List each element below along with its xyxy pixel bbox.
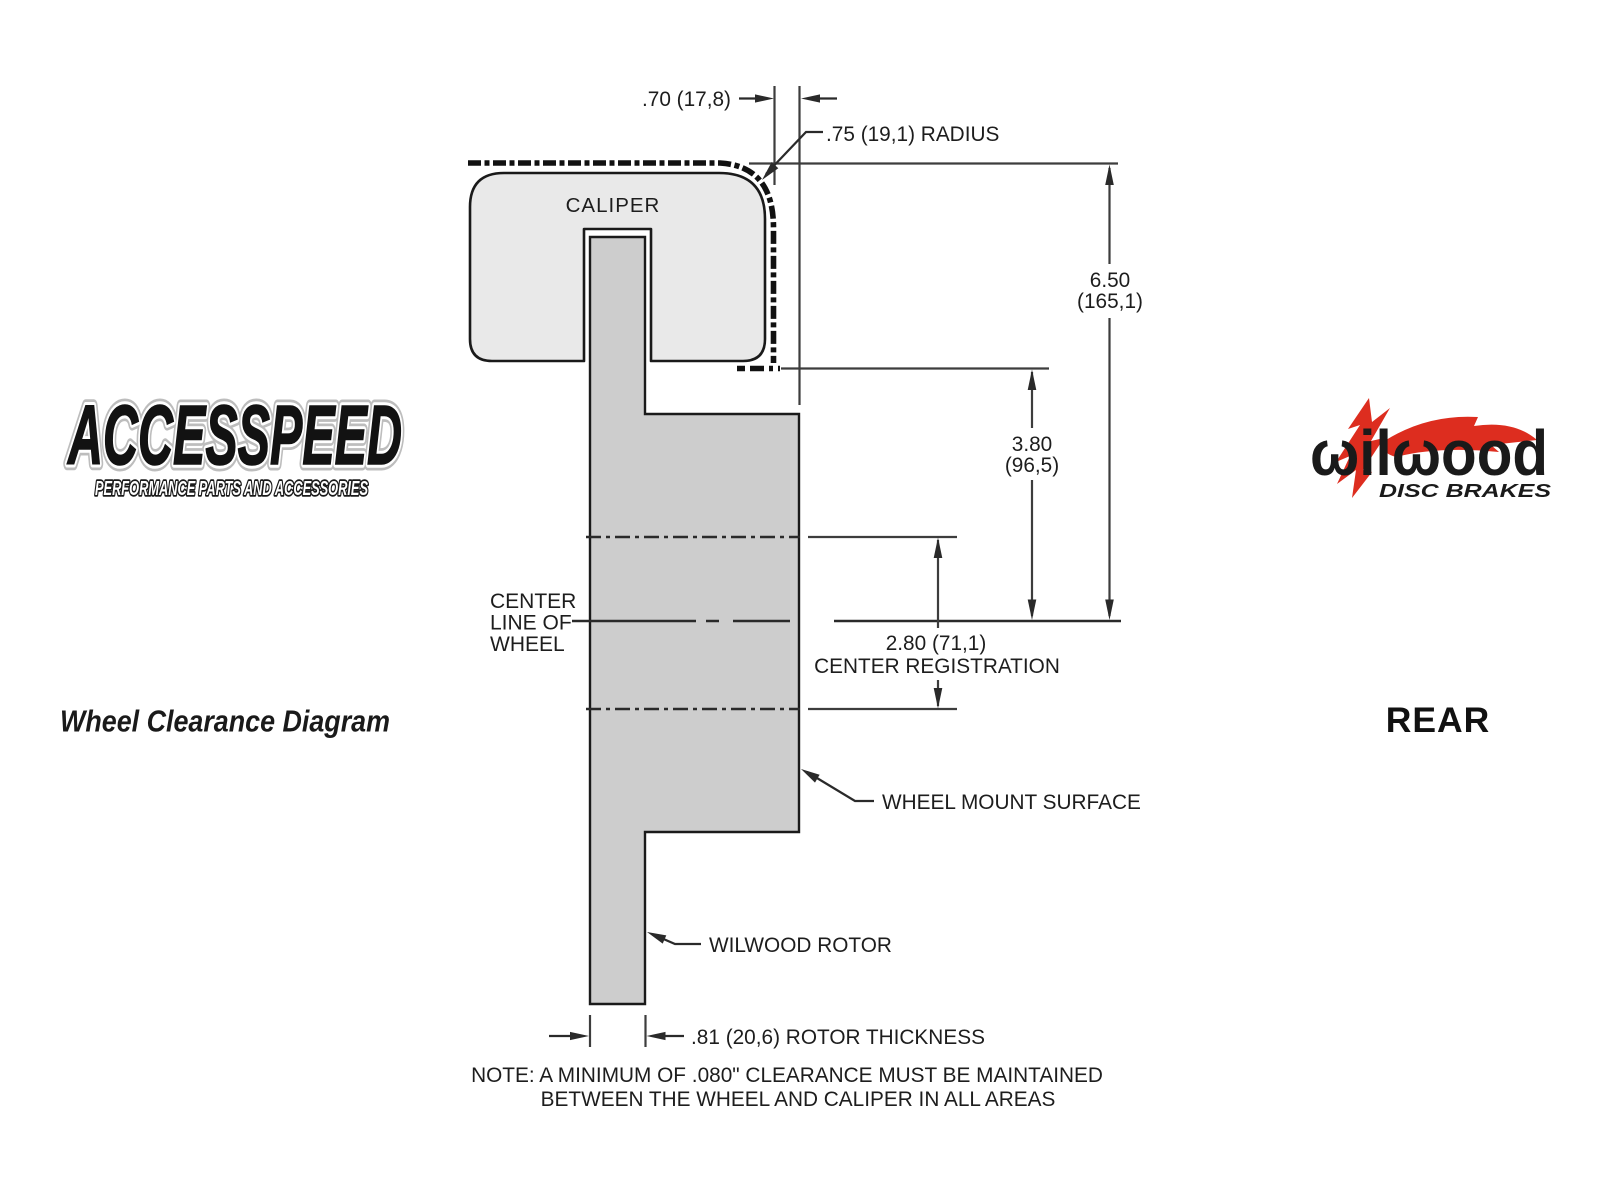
svg-text:CENTER REGISTRATION: CENTER REGISTRATION [814,655,1060,678]
svg-text:DISC BRAKES: DISC BRAKES [1379,480,1552,501]
svg-text:6.50: 6.50 [1090,269,1130,292]
svg-text:ACCESSPEED: ACCESSPEED [67,388,402,482]
svg-text:3.80: 3.80 [1012,433,1052,456]
svg-text:Wheel Clearance Diagram: Wheel Clearance Diagram [60,704,390,739]
svg-text:(165,1): (165,1) [1077,290,1143,313]
svg-text:CALIPER: CALIPER [566,194,661,217]
svg-text:(96,5): (96,5) [1005,454,1059,477]
svg-text:REAR: REAR [1386,700,1491,740]
svg-text:ωilωood: ωilωood [1310,417,1548,489]
svg-text:CENTER: CENTER [490,590,576,613]
svg-text:.75 (19,1) RADIUS: .75 (19,1) RADIUS [826,123,999,146]
svg-text:.81 (20,6) ROTOR THICKNESS: .81 (20,6) ROTOR THICKNESS [691,1026,985,1049]
svg-text:WILWOOD ROTOR: WILWOOD ROTOR [709,934,892,957]
svg-text:WHEEL MOUNT SURFACE: WHEEL MOUNT SURFACE [882,791,1141,814]
svg-text:NOTE: A MINIMUM OF .080" CLEAR: NOTE: A MINIMUM OF .080" CLEARANCE MUST … [471,1064,1103,1087]
svg-text:PERFORMANCE PARTS AND ACCESSOR: PERFORMANCE PARTS AND ACCESSORIES [95,477,368,500]
svg-text:WHEEL: WHEEL [490,633,565,656]
svg-text:BETWEEN THE WHEEL AND CALIPER: BETWEEN THE WHEEL AND CALIPER IN ALL ARE… [541,1088,1056,1111]
svg-text:LINE OF: LINE OF [490,612,572,635]
svg-text:2.80 (71,1): 2.80 (71,1) [886,632,987,655]
svg-text:.70 (17,8): .70 (17,8) [642,88,731,111]
